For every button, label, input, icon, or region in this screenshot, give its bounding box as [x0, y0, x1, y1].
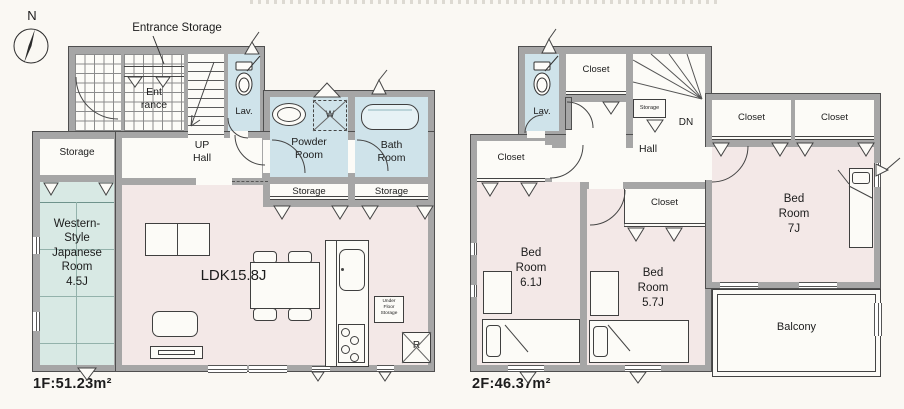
dining-chair [253, 308, 277, 321]
window [208, 365, 247, 373]
window [470, 285, 477, 297]
bath-room-label: Bath Room [355, 139, 428, 164]
burner-icon [350, 336, 359, 345]
under-floor-storage-label: Under Floor Storage [374, 299, 404, 318]
ldk-label: LDK15.8J [191, 267, 276, 285]
floor-plan-sheet: N Entrance Storage Ent rance UP Hall Lav… [0, 0, 904, 409]
closet-label: Closet [624, 197, 705, 208]
window [720, 282, 758, 289]
closet-label: Closet [477, 152, 545, 163]
desk [590, 271, 619, 316]
window [249, 365, 287, 373]
room-lavatory-2f [525, 54, 559, 131]
closet-label: Closet [566, 64, 626, 75]
opening-bed57-door [589, 182, 623, 189]
entrance-shelf-line [124, 66, 184, 67]
pillow [486, 325, 501, 357]
japanese-room-label: Western- Style Japanese Room 4.5J [40, 217, 114, 289]
bathtub [361, 104, 419, 130]
hall-2f-label: Hall [620, 143, 676, 156]
window [508, 365, 544, 372]
opening-bath-door [348, 140, 355, 173]
balcony-label: Balcony [712, 321, 881, 334]
area-2f-label: 2F:46.37m² [472, 376, 632, 393]
powder-room-label: Powder Room [270, 136, 348, 161]
window [377, 365, 394, 372]
cabinet-divider [177, 223, 178, 256]
rug [152, 311, 198, 337]
opening-hall-ldk [196, 178, 232, 185]
area-1f-label: 1F:51.23m² [33, 376, 193, 393]
tatami-closet-line [40, 202, 114, 203]
entrance-label: Ent rance [124, 86, 184, 111]
room-ldk-upper [122, 185, 263, 207]
storage-label: Storage [355, 186, 428, 197]
burner-icon [341, 328, 350, 337]
faucet-dot [341, 268, 344, 271]
washer-label: W [313, 109, 347, 120]
lav-2f-label: Lav. [525, 106, 559, 117]
window [470, 243, 477, 255]
kitchen-counter-line [336, 240, 337, 367]
window [799, 282, 837, 289]
opening-bed61-door [545, 145, 552, 178]
pillow [852, 172, 870, 184]
opening-bed7-door [705, 147, 712, 180]
bed-room-61j-label: Bed Room 6.1J [502, 246, 560, 291]
closet-label: Closet [795, 112, 874, 123]
burner-icon [350, 353, 359, 362]
entrance-shelf-line [124, 76, 184, 77]
compass-icon [14, 29, 48, 63]
window [32, 237, 40, 254]
bed-room-57j-label: Bed Room 5.7J [622, 266, 684, 311]
opening-lav2-door [527, 131, 545, 138]
burner-icon [341, 345, 350, 354]
room-lavatory-1f [228, 54, 260, 131]
window [625, 365, 661, 372]
lav-1f-label: Lav. [228, 106, 260, 117]
stairs-storage-label: Storage [633, 105, 666, 112]
tv-board-inner [158, 350, 195, 355]
storage-label: Storage [40, 147, 114, 159]
bed-room-7j-label: Bed Room 7J [762, 192, 826, 237]
room-porch [75, 54, 121, 131]
staircase-1f [188, 54, 224, 138]
storage-label: Storage [270, 186, 348, 197]
pillow [593, 326, 608, 357]
dn-label: DN [672, 117, 700, 129]
compass-needle-icon [24, 29, 35, 63]
fridge-label: R [402, 340, 431, 352]
flag-marker-icon [245, 29, 556, 97]
up-hall-label: UP Hall [182, 139, 222, 164]
wall-segment-hall [565, 97, 572, 130]
opening-lav1-door [230, 131, 248, 138]
entrance-storage-annotation: Entrance Storage [110, 22, 244, 36]
ldk-boundary-dashed-line [232, 181, 268, 182]
compass-n-label: N [22, 8, 42, 24]
powder-sink-inner [277, 107, 301, 122]
dining-chair [288, 308, 312, 321]
scan-artifact-strip [250, 0, 720, 4]
opening-powder-door [263, 140, 270, 173]
window [32, 312, 40, 331]
closet-label: Closet [712, 112, 791, 123]
window [874, 163, 881, 187]
